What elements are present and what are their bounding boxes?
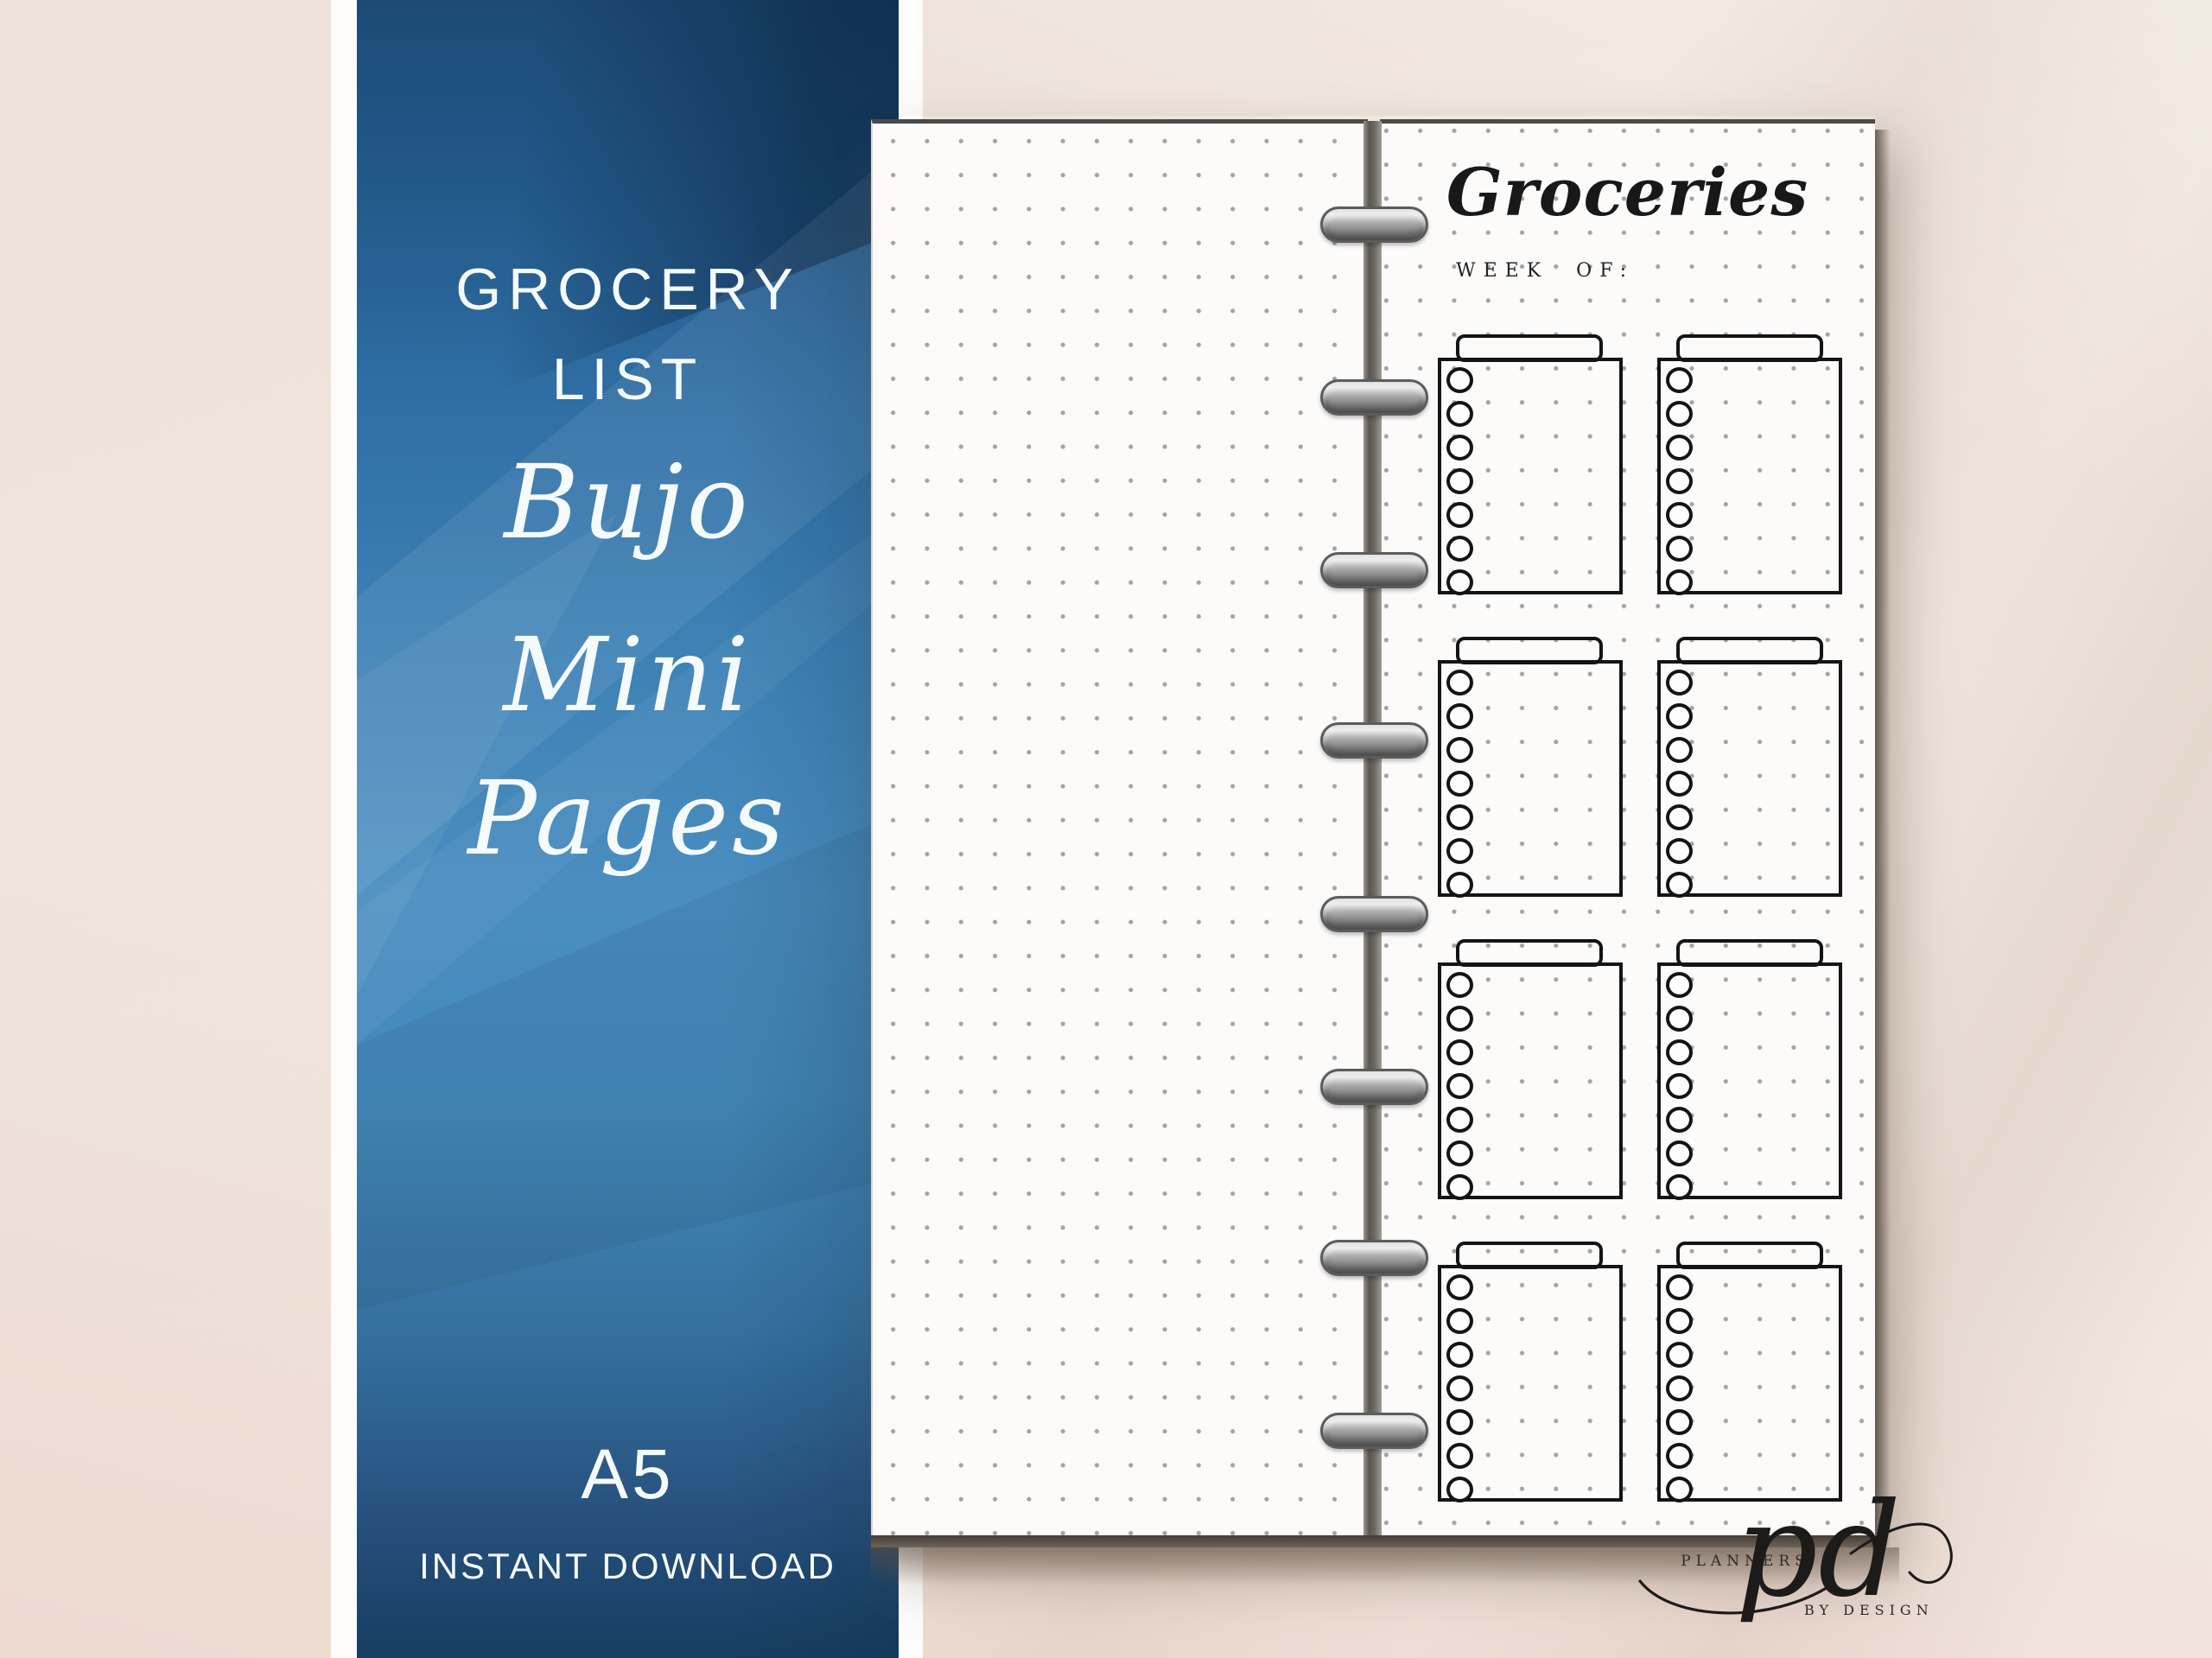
- checkbox-circle: [1446, 435, 1473, 461]
- checkbox-circle: [1446, 1477, 1473, 1502]
- category-box: [1657, 1265, 1842, 1502]
- checkbox-circle: [1446, 1107, 1473, 1133]
- checkbox-circle: [1446, 536, 1473, 562]
- checkbox-circle: [1666, 972, 1693, 998]
- checkbox-circle: [1666, 1107, 1693, 1133]
- brand-name-bottom: BY DESIGN: [1804, 1602, 1934, 1618]
- binding-disc: [1320, 1240, 1428, 1276]
- checkbox-circle: [1666, 838, 1693, 864]
- binding-disc: [1320, 1069, 1428, 1105]
- checkbox-circle: [1446, 1274, 1473, 1300]
- brand-logo: PLANNERS pd BY DESIGN: [1624, 1479, 1970, 1658]
- checkbox-circle: [1666, 872, 1693, 898]
- checkbox-circle: [1666, 1308, 1693, 1334]
- checkbox-circle: [1666, 1409, 1693, 1435]
- checkbox-circle: [1666, 737, 1693, 763]
- binding-disc: [1320, 552, 1428, 588]
- category-box: [1657, 660, 1842, 897]
- checkbox-circle: [1666, 1174, 1693, 1200]
- category-box: [1438, 962, 1623, 1199]
- banner-white-border-left: [331, 0, 357, 1658]
- checkbox-circle: [1666, 502, 1693, 528]
- binding-disc: [1320, 722, 1428, 759]
- checkbox-circle: [1446, 972, 1473, 998]
- checkbox-circle: [1446, 367, 1473, 393]
- checkbox-circle: [1446, 737, 1473, 763]
- page-title: Groceries: [1380, 154, 1875, 231]
- checkbox-circle: [1446, 872, 1473, 898]
- checkbox-circle: [1666, 804, 1693, 830]
- checkbox-circle: [1666, 1140, 1693, 1166]
- checkbox-circle: [1446, 1409, 1473, 1435]
- checkbox-circle: [1446, 838, 1473, 864]
- checkbox-circle: [1446, 502, 1473, 528]
- checkbox-circle: [1446, 1140, 1473, 1166]
- category-box: [1438, 660, 1623, 897]
- banner-script-line1: Bujo: [357, 442, 899, 562]
- checkbox-circle: [1666, 1375, 1693, 1401]
- size-label: A5: [357, 1434, 899, 1515]
- brand-monogram: pd: [1735, 1486, 1901, 1616]
- checkbox-circle: [1446, 1073, 1473, 1099]
- checkbox-circle: [1446, 1006, 1473, 1032]
- checkbox-circle: [1446, 569, 1473, 595]
- checkbox-circle: [1446, 1375, 1473, 1401]
- promo-banner: GROCERY LIST Bujo Mini Pages A5 INSTANT …: [357, 0, 899, 1658]
- category-box: [1657, 962, 1842, 1199]
- checkbox-circle: [1666, 1073, 1693, 1099]
- checkbox-circle: [1666, 1342, 1693, 1368]
- binding-disc: [1320, 1413, 1428, 1449]
- checkbox-circle: [1666, 536, 1693, 562]
- checkbox-circle: [1666, 401, 1693, 427]
- checkbox-circle: [1446, 771, 1473, 797]
- checkbox-circle: [1446, 401, 1473, 427]
- checkbox-circle: [1666, 367, 1693, 393]
- checkbox-circle: [1446, 670, 1473, 696]
- banner-heading-line1: GROCERY: [357, 256, 899, 323]
- banner-script-line2: Mini: [357, 615, 899, 734]
- checkbox-circle: [1666, 771, 1693, 797]
- checkbox-circle: [1666, 1443, 1693, 1469]
- availability-label: INSTANT DOWNLOAD: [357, 1546, 899, 1587]
- checkbox-circle: [1666, 703, 1693, 729]
- checkbox-circle: [1666, 569, 1693, 595]
- banner-script-line3: Pages: [357, 759, 899, 878]
- checkbox-circle: [1666, 1039, 1693, 1065]
- checkbox-circle: [1446, 703, 1473, 729]
- product-image: GROCERY LIST Bujo Mini Pages A5 INSTANT …: [0, 0, 2212, 1658]
- checkbox-circle: [1666, 468, 1693, 494]
- disc-binding-spine: [1363, 121, 1382, 1535]
- left-dot-grid-page: [871, 119, 1368, 1547]
- checkbox-circle: [1666, 1006, 1693, 1032]
- banner-heading-line2: LIST: [357, 346, 899, 413]
- checkbox-circle: [1446, 1443, 1473, 1469]
- category-box: [1438, 1265, 1623, 1502]
- checkbox-circle: [1446, 1342, 1473, 1368]
- checkbox-circle: [1446, 468, 1473, 494]
- checkbox-circle: [1666, 1274, 1693, 1300]
- category-box: [1657, 358, 1842, 594]
- binding-disc: [1320, 896, 1428, 932]
- category-box: [1438, 358, 1623, 594]
- checkbox-circle: [1666, 435, 1693, 461]
- checkbox-circle: [1446, 1308, 1473, 1334]
- checkbox-circle: [1446, 1039, 1473, 1065]
- checkbox-circle: [1446, 804, 1473, 830]
- checkbox-circle: [1666, 670, 1693, 696]
- page-right-shadow: [1875, 130, 1891, 1547]
- checkbox-circle: [1446, 1174, 1473, 1200]
- binding-disc: [1320, 379, 1428, 416]
- week-of-label: WEEK OF:: [1456, 260, 1634, 282]
